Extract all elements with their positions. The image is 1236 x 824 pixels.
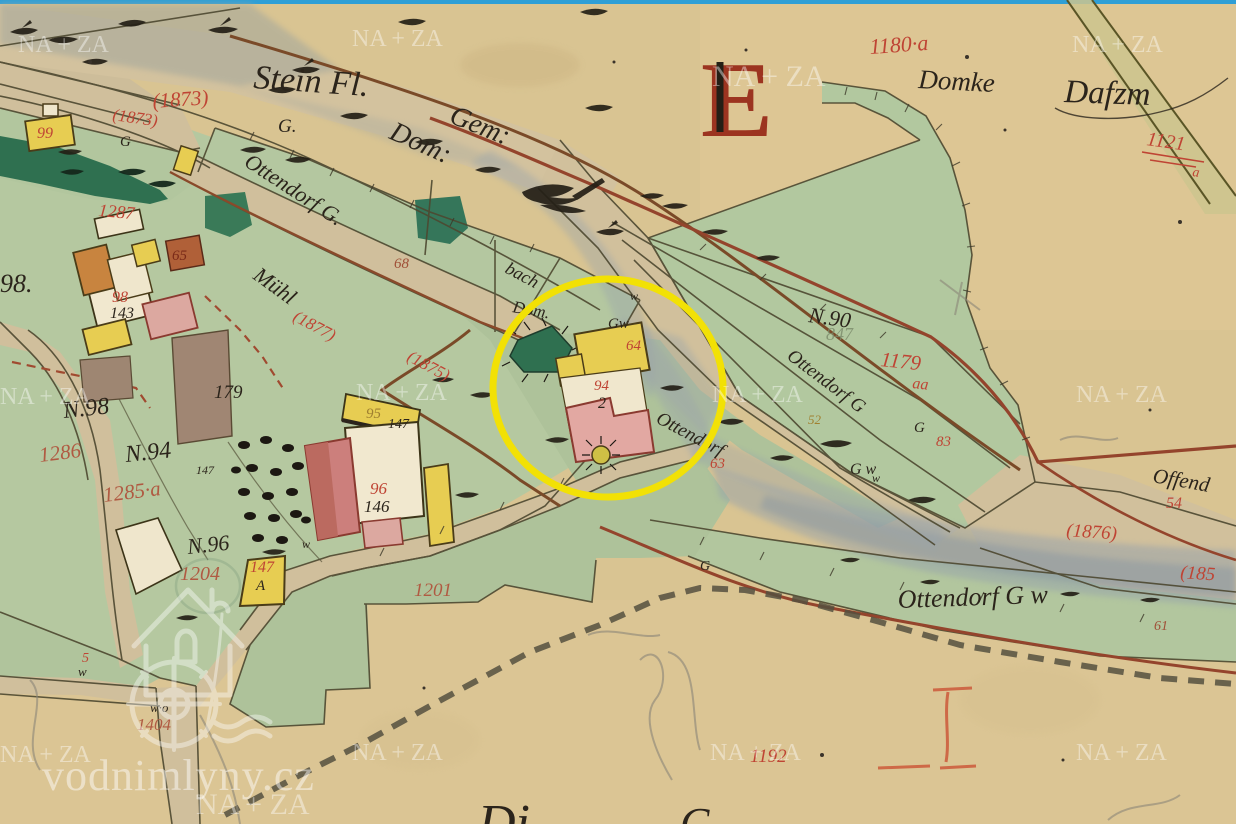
svg-text:5: 5 — [82, 651, 89, 666]
svg-text:N.96: N.96 — [185, 530, 231, 559]
svg-text:NA + ZA: NA + ZA — [18, 32, 110, 58]
svg-text:1286: 1286 — [38, 438, 83, 467]
svg-text:1179: 1179 — [879, 347, 922, 375]
svg-text:NA + ZA: NA + ZA — [712, 382, 804, 408]
svg-text:(185: (185 — [1180, 562, 1216, 585]
svg-text:847: 847 — [826, 324, 854, 344]
svg-text:NA + ZA: NA + ZA — [352, 26, 444, 52]
svg-text:94: 94 — [594, 378, 610, 394]
svg-text:179: 179 — [214, 382, 243, 403]
svg-text:54: 54 — [1166, 495, 1182, 512]
svg-text:Ottendorf G w: Ottendorf G w — [897, 580, 1049, 614]
svg-text:1287: 1287 — [98, 200, 137, 223]
svg-text:A: A — [255, 578, 266, 594]
svg-text:NA + ZA: NA + ZA — [712, 60, 826, 93]
svg-text:64: 64 — [626, 338, 642, 354]
svg-text:63: 63 — [710, 456, 725, 472]
svg-text:NA + ZA: NA + ZA — [196, 788, 310, 821]
svg-text:w: w — [78, 664, 87, 679]
svg-text:1180·a: 1180·a — [869, 30, 929, 59]
svg-text:w: w — [302, 537, 310, 551]
svg-text:2: 2 — [598, 395, 606, 412]
svg-text:61: 61 — [1154, 619, 1168, 634]
svg-text:147: 147 — [250, 559, 275, 576]
svg-text:99: 99 — [37, 125, 53, 142]
svg-text:C: C — [680, 799, 710, 824]
svg-text:1201: 1201 — [414, 580, 452, 601]
svg-text:147: 147 — [388, 417, 410, 432]
svg-text:52: 52 — [808, 412, 822, 427]
svg-text:G: G — [700, 559, 710, 574]
svg-text:NA + ZA: NA + ZA — [1072, 32, 1164, 58]
svg-text:143: 143 — [110, 305, 134, 322]
svg-text:NA + ZA: NA + ZA — [0, 384, 92, 410]
svg-text:96: 96 — [370, 479, 388, 498]
svg-text:NA + ZA: NA + ZA — [1076, 740, 1168, 766]
svg-text:146: 146 — [364, 497, 390, 516]
svg-text:(1876): (1876) — [1066, 520, 1118, 544]
svg-text:68: 68 — [394, 256, 410, 272]
svg-text:83: 83 — [936, 434, 951, 450]
svg-text:w: w — [872, 471, 880, 485]
svg-text:NA + ZA: NA + ZA — [352, 740, 444, 766]
svg-text:NA + ZA: NA + ZA — [0, 742, 92, 768]
svg-text:NA + ZA: NA + ZA — [356, 380, 448, 406]
svg-text:G: G — [120, 134, 131, 150]
svg-text:N.94: N.94 — [123, 437, 172, 468]
svg-text:Dafzm: Dafzm — [1063, 74, 1151, 113]
svg-text:95: 95 — [366, 406, 382, 422]
svg-text:w: w — [630, 289, 638, 303]
svg-text:NA + ZA: NA + ZA — [1076, 382, 1168, 408]
svg-text:G: G — [914, 420, 925, 436]
svg-text:aa: aa — [912, 375, 930, 394]
svg-text:NA + ZA: NA + ZA — [710, 740, 802, 766]
svg-text:98: 98 — [112, 289, 128, 306]
svg-text:E: E — [701, 41, 773, 160]
svg-text:Domke: Domke — [917, 64, 996, 98]
svg-text:Gw: Gw — [608, 316, 629, 332]
svg-text:147: 147 — [196, 463, 215, 477]
svg-text:(1873): (1873) — [152, 85, 210, 113]
svg-text:Di: Di — [477, 795, 530, 824]
svg-text:G.: G. — [278, 116, 296, 137]
svg-text:65: 65 — [172, 248, 188, 264]
svg-text:98.: 98. — [0, 269, 33, 298]
